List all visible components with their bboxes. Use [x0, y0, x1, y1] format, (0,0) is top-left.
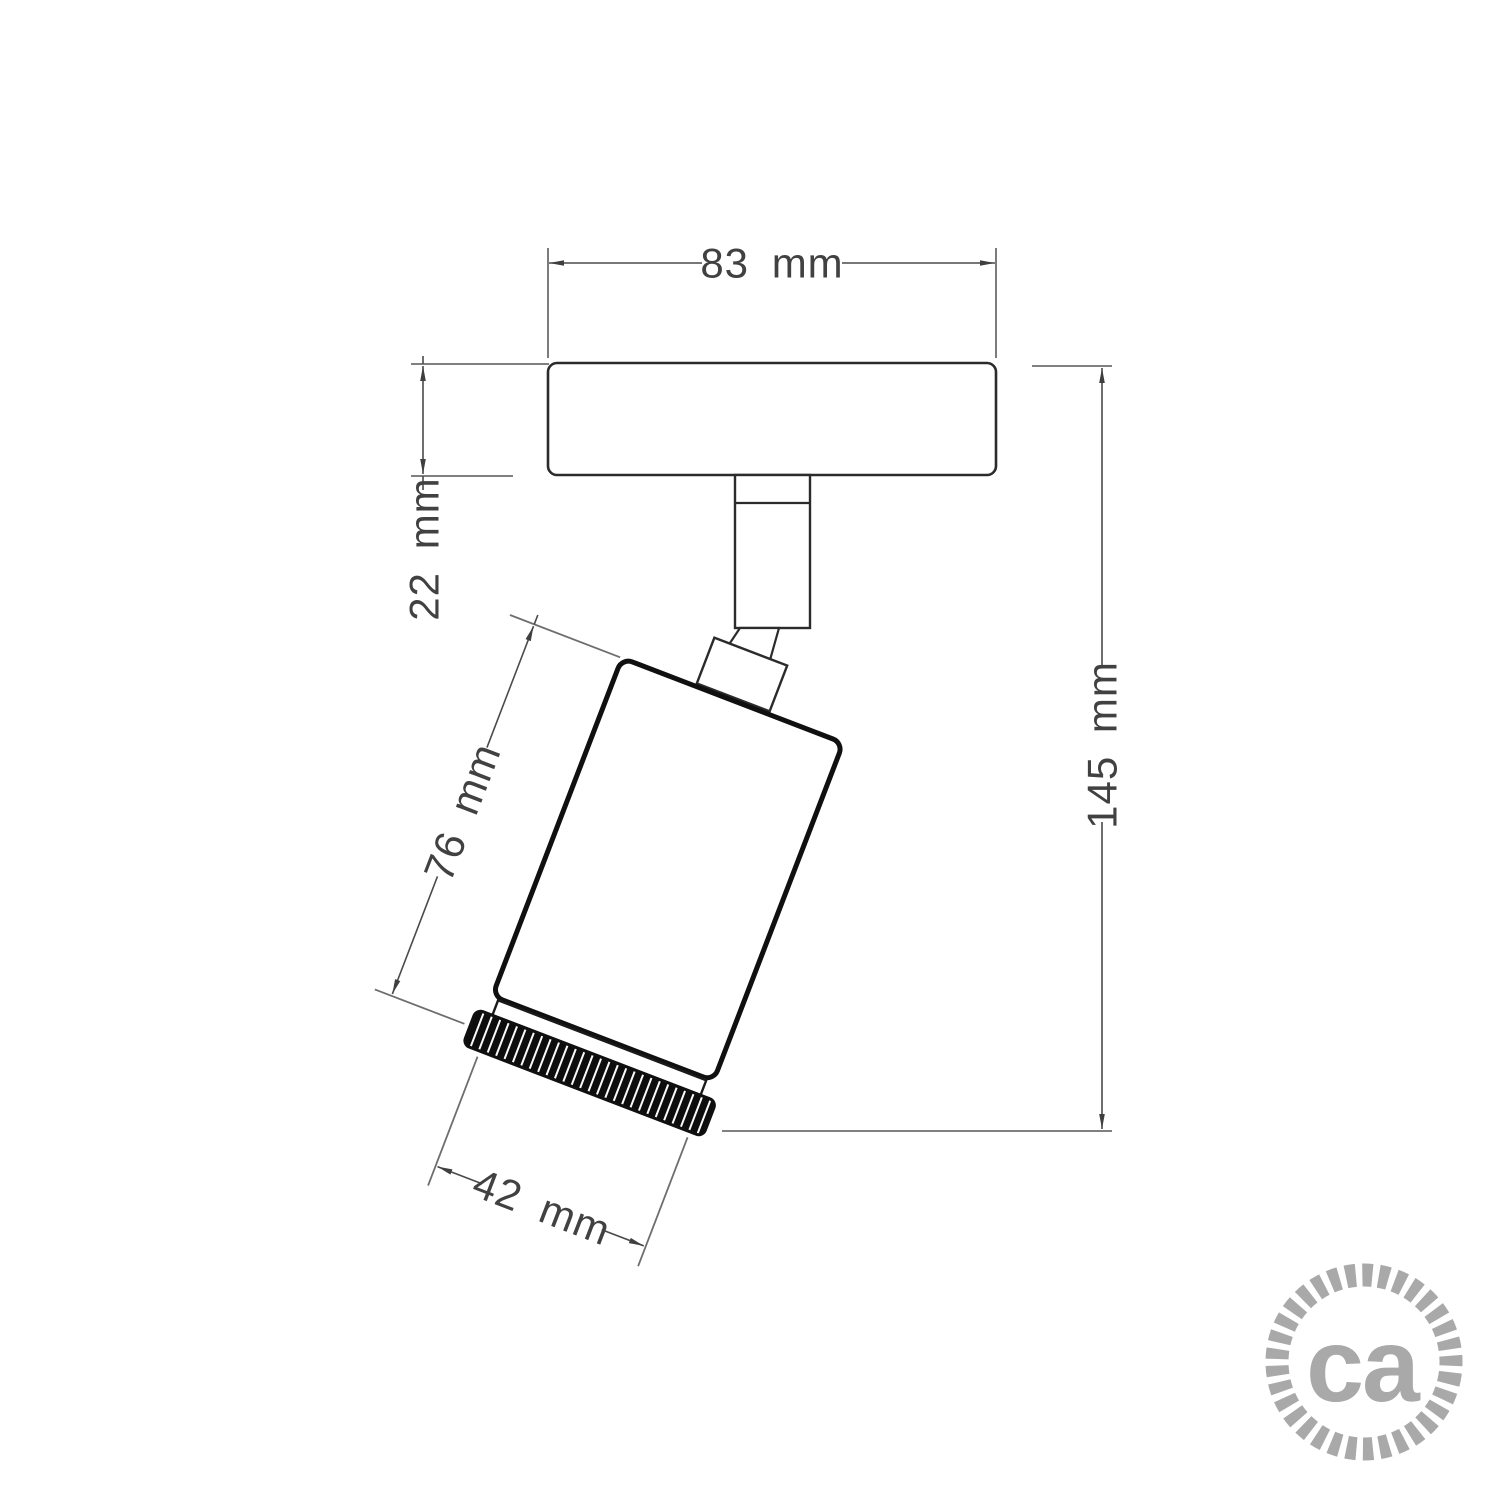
brand-logo: ca — [1266, 1264, 1463, 1461]
dimension-base-width: 83 mm — [548, 240, 996, 359]
dimension-diagram: 83 mm 22 mm 145 mm — [0, 0, 1500, 1500]
dimension-body-length-label: 76 mm — [415, 737, 510, 888]
brand-logo-text: ca — [1306, 1308, 1421, 1424]
lamp-body-group: 76 mm 42 mm — [308, 606, 857, 1274]
extension-line — [510, 615, 620, 657]
dimension-base-thickness: 22 mm — [401, 356, 550, 621]
diagram-canvas: 83 mm 22 mm 145 mm — [0, 0, 1500, 1500]
dimension-line — [487, 626, 534, 747]
extension-line — [638, 1137, 687, 1266]
stem-body — [735, 475, 810, 628]
ceiling-plate — [548, 363, 996, 475]
dimension-line — [392, 876, 437, 994]
dimension-overall-height-label: 145 mm — [1079, 661, 1126, 829]
extension-line — [428, 1057, 477, 1186]
dimension-line-overshoot — [534, 615, 538, 624]
dimension-base-thickness-label: 22 mm — [401, 477, 448, 620]
extension-line — [375, 989, 465, 1023]
dimension-body-diameter-label: 42 mm — [467, 1159, 618, 1254]
dimension-base-width-label: 83 mm — [700, 240, 843, 287]
stem — [735, 475, 810, 628]
